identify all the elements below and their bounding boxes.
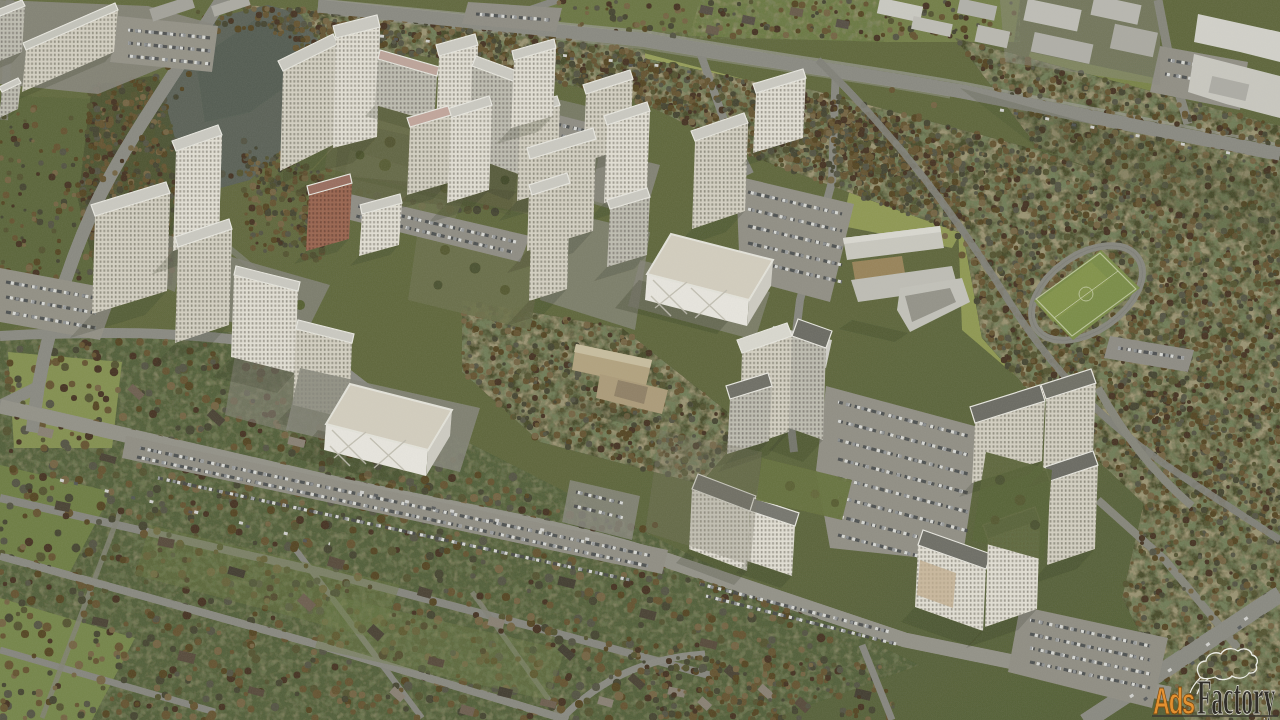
svg-text:Factory: Factory: [1197, 669, 1276, 720]
svg-text:Ads: Ads: [1153, 681, 1194, 720]
